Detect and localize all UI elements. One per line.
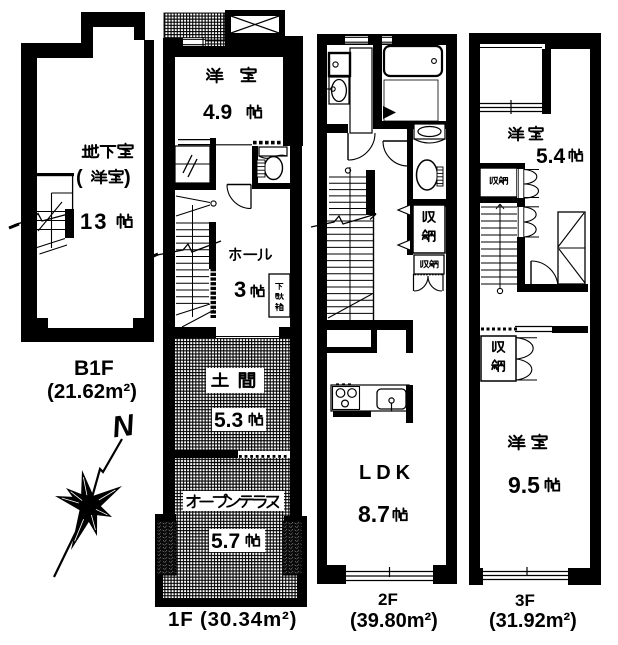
svg-text:(39.80m²): (39.80m²) bbox=[350, 610, 438, 632]
svg-text:3: 3 bbox=[234, 277, 246, 302]
svg-text:4.9: 4.9 bbox=[203, 101, 232, 124]
svg-text:9.5: 9.5 bbox=[508, 472, 540, 498]
svg-text:5.4: 5.4 bbox=[536, 145, 566, 168]
svg-text:(: ( bbox=[76, 167, 83, 189]
svg-text:LDK: LDK bbox=[359, 462, 415, 484]
svg-text:B1F: B1F bbox=[74, 357, 114, 380]
svg-text:13: 13 bbox=[80, 209, 108, 234]
svg-text:3F: 3F bbox=[515, 591, 535, 610]
svg-text:2F: 2F bbox=[378, 590, 398, 609]
svg-text:(31.92m²): (31.92m²) bbox=[489, 610, 577, 632]
svg-text:5.3: 5.3 bbox=[214, 409, 243, 432]
svg-text:1F (30.34m²): 1F (30.34m²) bbox=[168, 608, 297, 631]
svg-text:8.7: 8.7 bbox=[358, 501, 390, 527]
svg-text:(21.62m²): (21.62m²) bbox=[47, 380, 137, 403]
svg-text:): ) bbox=[124, 167, 131, 189]
svg-text:5.7: 5.7 bbox=[211, 530, 240, 553]
